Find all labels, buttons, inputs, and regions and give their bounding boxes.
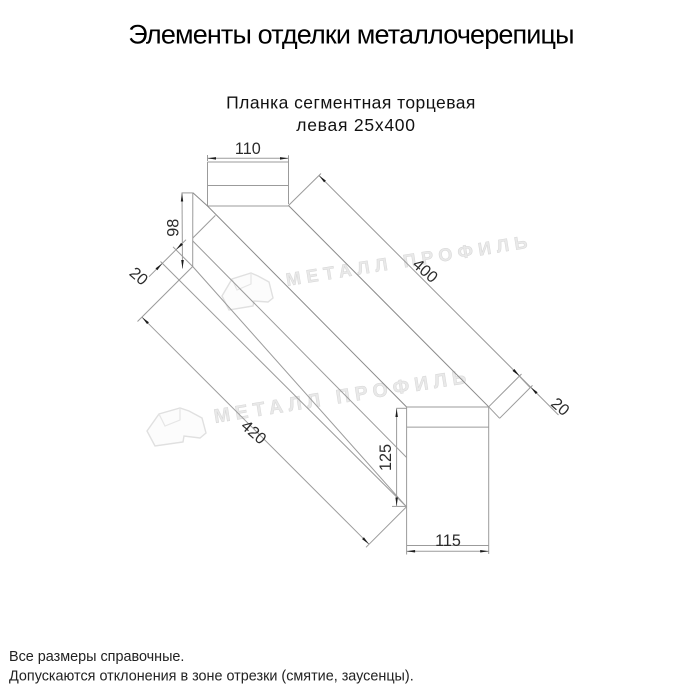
svg-text:Допускаются отклонения в зоне: Допускаются отклонения в зоне отрезки (с… [9, 669, 414, 685]
svg-text:Все размеры справочные.: Все размеры справочные. [9, 649, 184, 665]
svg-text:левая 25х400: левая 25х400 [296, 115, 416, 135]
svg-text:Планка сегментная торцевая: Планка сегментная торцевая [226, 93, 476, 113]
svg-text:110: 110 [235, 140, 261, 158]
svg-text:98: 98 [165, 219, 183, 237]
svg-text:125: 125 [377, 444, 395, 471]
svg-text:Элементы отделки металлочерепи: Элементы отделки металлочерепицы [128, 20, 573, 50]
svg-text:115: 115 [435, 532, 461, 550]
